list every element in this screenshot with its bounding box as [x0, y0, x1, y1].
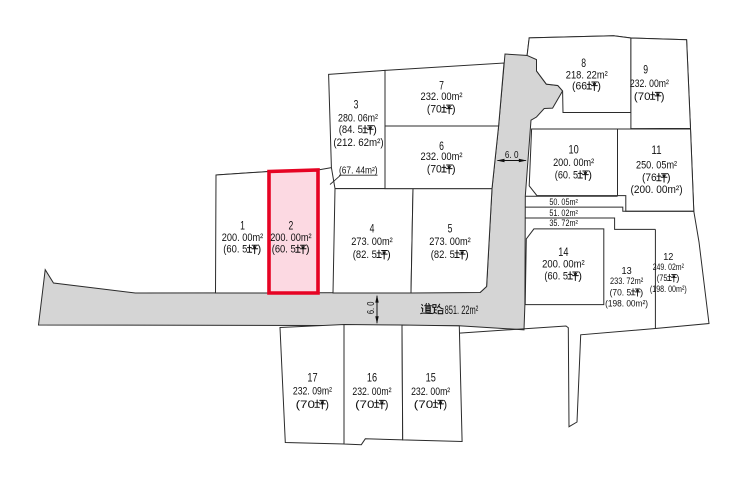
svg-text:11: 11 [651, 143, 661, 157]
svg-text:1: 1 [240, 219, 245, 233]
svg-text:35. 72m²: 35. 72m² [549, 218, 578, 228]
svg-text:6. 0: 6. 0 [366, 301, 377, 314]
svg-text:): ) [452, 104, 456, 116]
svg-text:): ) [258, 244, 262, 256]
svg-text:(70: (70 [355, 399, 374, 411]
svg-text:(198. 00m²): (198. 00m²) [650, 284, 687, 295]
svg-text:): ) [578, 271, 582, 283]
svg-text:(75: (75 [657, 273, 668, 284]
svg-text:10: 10 [569, 143, 580, 157]
svg-text:): ) [465, 249, 469, 261]
svg-text:14: 14 [558, 245, 569, 259]
svg-text:(60. 5: (60. 5 [223, 244, 247, 256]
svg-text:): ) [385, 399, 389, 411]
svg-text:(70: (70 [296, 399, 315, 411]
svg-text:): ) [443, 399, 447, 411]
svg-text:16: 16 [367, 370, 378, 384]
svg-text:(60. 5: (60. 5 [544, 271, 568, 283]
svg-text:273. 00m²: 273. 00m² [429, 236, 471, 248]
svg-text:232. 00m²: 232. 00m² [411, 386, 450, 398]
svg-text:6. 0: 6. 0 [505, 150, 519, 161]
svg-text:(70: (70 [427, 164, 442, 176]
svg-text:12: 12 [663, 251, 673, 263]
svg-text:(70. 5: (70. 5 [610, 287, 632, 298]
svg-text:(82. 5: (82. 5 [431, 249, 455, 261]
svg-text:(70: (70 [634, 91, 651, 103]
svg-text:): ) [387, 249, 391, 261]
svg-text:): ) [676, 273, 679, 284]
svg-text:(82. 5: (82. 5 [353, 249, 377, 261]
svg-text:232. 00m²: 232. 00m² [421, 91, 463, 103]
svg-text:(60. 5: (60. 5 [555, 170, 578, 182]
svg-text:): ) [667, 172, 671, 184]
svg-text:(76: (76 [642, 172, 657, 184]
svg-text:17: 17 [307, 370, 317, 384]
svg-text:3: 3 [354, 98, 359, 112]
svg-text:(212. 62m²): (212. 62m²) [333, 137, 383, 149]
svg-text:51. 02m²: 51. 02m² [549, 208, 578, 218]
svg-text:4: 4 [370, 221, 375, 235]
svg-text:(198. 00m²): (198. 00m²) [605, 298, 648, 309]
svg-text:(66: (66 [572, 81, 587, 93]
svg-text:200. 00m²: 200. 00m² [553, 157, 594, 169]
svg-text:9: 9 [643, 63, 648, 77]
svg-text:232. 00m²: 232. 00m² [421, 151, 463, 163]
svg-text:200. 00m²: 200. 00m² [270, 232, 312, 244]
svg-text:273. 00m²: 273. 00m² [351, 236, 393, 248]
svg-text:): ) [452, 164, 456, 176]
svg-text:): ) [325, 399, 329, 411]
svg-text:): ) [597, 81, 601, 93]
svg-text:): ) [661, 91, 665, 103]
svg-text:232. 00m²: 232. 00m² [352, 386, 391, 398]
svg-text:(84. 5: (84. 5 [339, 124, 363, 136]
svg-text:): ) [640, 287, 643, 298]
svg-text:): ) [588, 170, 592, 182]
svg-text:200. 00m²: 200. 00m² [542, 259, 585, 271]
svg-text:50. 05m²: 50. 05m² [549, 197, 578, 207]
svg-text:): ) [306, 244, 310, 256]
svg-text:(60. 5: (60. 5 [272, 244, 296, 256]
svg-text:250. 05m²: 250. 05m² [636, 159, 677, 171]
svg-text:(200. 00m²): (200. 00m²) [631, 184, 683, 196]
svg-text:280. 06m²: 280. 06m² [338, 112, 378, 124]
svg-text:249. 02m²: 249. 02m² [653, 262, 685, 273]
svg-text:): ) [373, 124, 377, 136]
svg-text:232. 00m²: 232. 00m² [630, 78, 669, 90]
svg-text:8: 8 [581, 56, 586, 70]
svg-text:5: 5 [448, 221, 453, 235]
svg-text:(70: (70 [414, 399, 433, 411]
svg-text:2: 2 [289, 219, 294, 233]
svg-text:851. 22m²: 851. 22m² [445, 303, 479, 317]
svg-text:200. 00m²: 200. 00m² [222, 232, 264, 244]
svg-text:15: 15 [426, 370, 437, 384]
svg-text:233. 72m²: 233. 72m² [610, 276, 644, 287]
svg-text:(70: (70 [427, 104, 442, 116]
svg-text:232. 09m²: 232. 09m² [293, 386, 332, 398]
